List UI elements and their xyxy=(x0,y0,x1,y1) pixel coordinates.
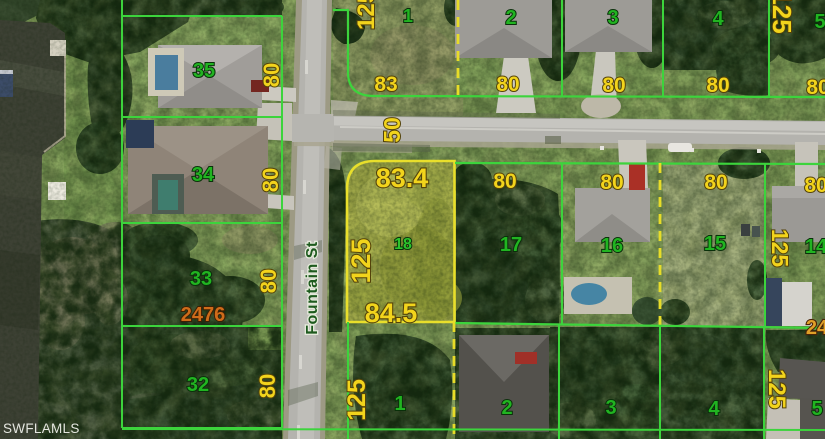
svg-text:2: 2 xyxy=(501,397,512,419)
svg-text:80: 80 xyxy=(258,168,283,192)
svg-text:80: 80 xyxy=(259,63,284,87)
svg-text:80: 80 xyxy=(256,269,281,293)
svg-text:80: 80 xyxy=(600,171,623,194)
svg-text:84.5: 84.5 xyxy=(365,298,418,328)
svg-text:2476: 2476 xyxy=(181,304,226,326)
svg-text:80: 80 xyxy=(804,174,825,197)
svg-text:3: 3 xyxy=(607,7,618,29)
svg-text:34: 34 xyxy=(192,164,215,186)
svg-text:80: 80 xyxy=(496,73,519,96)
svg-text:80: 80 xyxy=(704,171,727,194)
svg-text:5: 5 xyxy=(814,11,825,33)
svg-text:16: 16 xyxy=(601,235,623,257)
svg-text:SWFLAMLS: SWFLAMLS xyxy=(3,421,80,436)
svg-text:1: 1 xyxy=(394,393,405,415)
svg-text:4: 4 xyxy=(712,8,724,30)
svg-text:14: 14 xyxy=(805,236,825,258)
svg-text:17: 17 xyxy=(500,234,522,256)
svg-text:3: 3 xyxy=(605,397,616,419)
svg-text:125: 125 xyxy=(353,0,380,30)
svg-text:125: 125 xyxy=(767,229,793,268)
svg-text:2: 2 xyxy=(505,7,516,29)
svg-text:125: 125 xyxy=(767,0,797,34)
svg-text:5: 5 xyxy=(811,398,822,420)
svg-text:33: 33 xyxy=(190,268,212,290)
svg-text:80: 80 xyxy=(493,170,516,193)
svg-text:Fountain St: Fountain St xyxy=(304,241,321,335)
svg-text:15: 15 xyxy=(704,233,726,255)
svg-text:35: 35 xyxy=(193,60,215,82)
svg-text:83: 83 xyxy=(374,73,397,96)
svg-text:80: 80 xyxy=(706,74,729,97)
svg-text:125: 125 xyxy=(343,379,371,421)
svg-text:125: 125 xyxy=(346,238,376,283)
svg-text:83.4: 83.4 xyxy=(376,163,429,193)
svg-text:80: 80 xyxy=(602,74,625,97)
svg-text:24: 24 xyxy=(806,317,825,339)
svg-text:80: 80 xyxy=(806,76,825,99)
svg-text:125: 125 xyxy=(763,369,790,409)
svg-text:18: 18 xyxy=(394,236,412,253)
svg-text:32: 32 xyxy=(187,374,209,396)
svg-text:1: 1 xyxy=(403,6,413,26)
svg-text:50: 50 xyxy=(379,117,405,143)
svg-text:80: 80 xyxy=(255,374,280,398)
svg-text:4: 4 xyxy=(708,398,720,420)
